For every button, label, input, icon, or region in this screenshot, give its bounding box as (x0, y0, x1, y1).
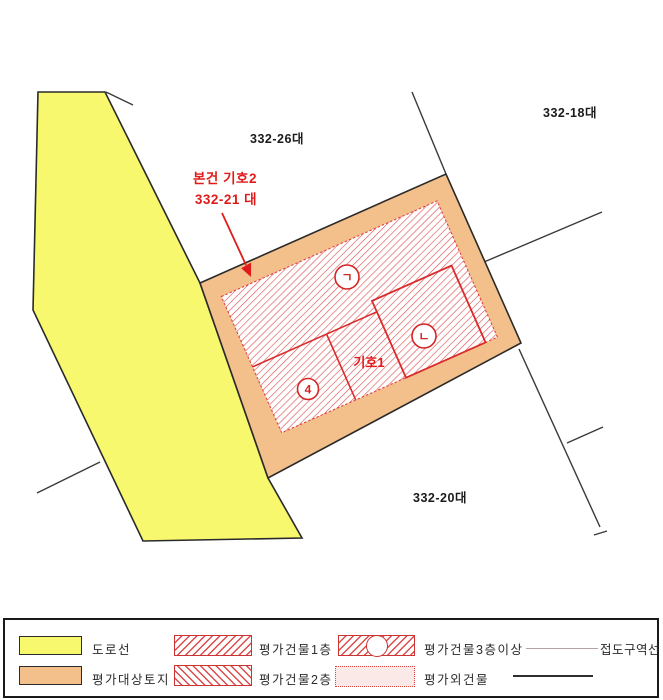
cadastral-map: ㄱ ㄴ 4 기호1 332-26대 332-18대 332-20대 본건 기호2… (0, 0, 663, 612)
parcel-label-332-20: 332-20대 (413, 491, 467, 505)
three-floor-circle-icon (366, 635, 388, 657)
parcel-boundary-line (519, 349, 600, 527)
legend-swatch-building-1f (174, 635, 252, 656)
legend-label-building-2f: 평가건물2층 (259, 669, 332, 688)
marker-glyph-nieun: ㄴ (418, 330, 429, 344)
legend-label-building-3f-plus: 평가건물3층이상 (424, 639, 523, 658)
parcel-label-332-18: 332-18대 (543, 106, 597, 120)
building-unit-label: 기호1 (353, 355, 384, 370)
parcel-label-332-26: 332-26대 (250, 132, 304, 146)
building-marker-nieun: ㄴ (412, 324, 436, 348)
legend-label-building-1f: 평가건물1층 (259, 639, 332, 658)
page: { "map": { "parcel_labels": [ { "text": … (0, 0, 663, 700)
subject-annotation-line2: 332-21 대 (195, 192, 257, 207)
subject-annotation-line1: 본건 기호2 (193, 170, 257, 186)
legend-label-excluded-building: 평가외건물 (424, 669, 489, 688)
building-marker-4: 4 (298, 379, 319, 400)
parcel-boundary-tick (594, 531, 607, 535)
legend-label-road-line: 도로선 (92, 639, 131, 658)
parcel-boundary-line (484, 212, 602, 262)
parcel-boundary-line (37, 462, 100, 493)
marker-glyph-giyeok: ㄱ (341, 271, 352, 285)
marker-glyph-4: 4 (305, 383, 312, 397)
legend: 도로선 평가대상토지 평가건물1층 평가건물2층 평가건물3층이상 평가외건물 … (3, 618, 659, 698)
legend-boundary-line-sample (513, 675, 593, 677)
legend-swatch-building-3f-plus (338, 635, 415, 656)
legend-swatch-road (19, 636, 82, 655)
cadastral-map-svg: ㄱ ㄴ 4 기호1 332-26대 332-18대 332-20대 본건 기호2… (0, 0, 663, 612)
legend-swatch-building-2f (174, 665, 252, 686)
legend-swatch-excluded-building (335, 666, 415, 687)
legend-swatch-subject-land (19, 666, 82, 685)
parcel-boundary-line (412, 92, 446, 174)
parcel-boundary-line (567, 427, 603, 443)
legend-label-road-zone-line: 접도구역선 (600, 639, 660, 658)
building-marker-giyeok: ㄱ (335, 265, 359, 289)
legend-road-zone-line-sample (526, 648, 598, 649)
legend-label-subject-land: 평가대상토지 (92, 669, 170, 688)
